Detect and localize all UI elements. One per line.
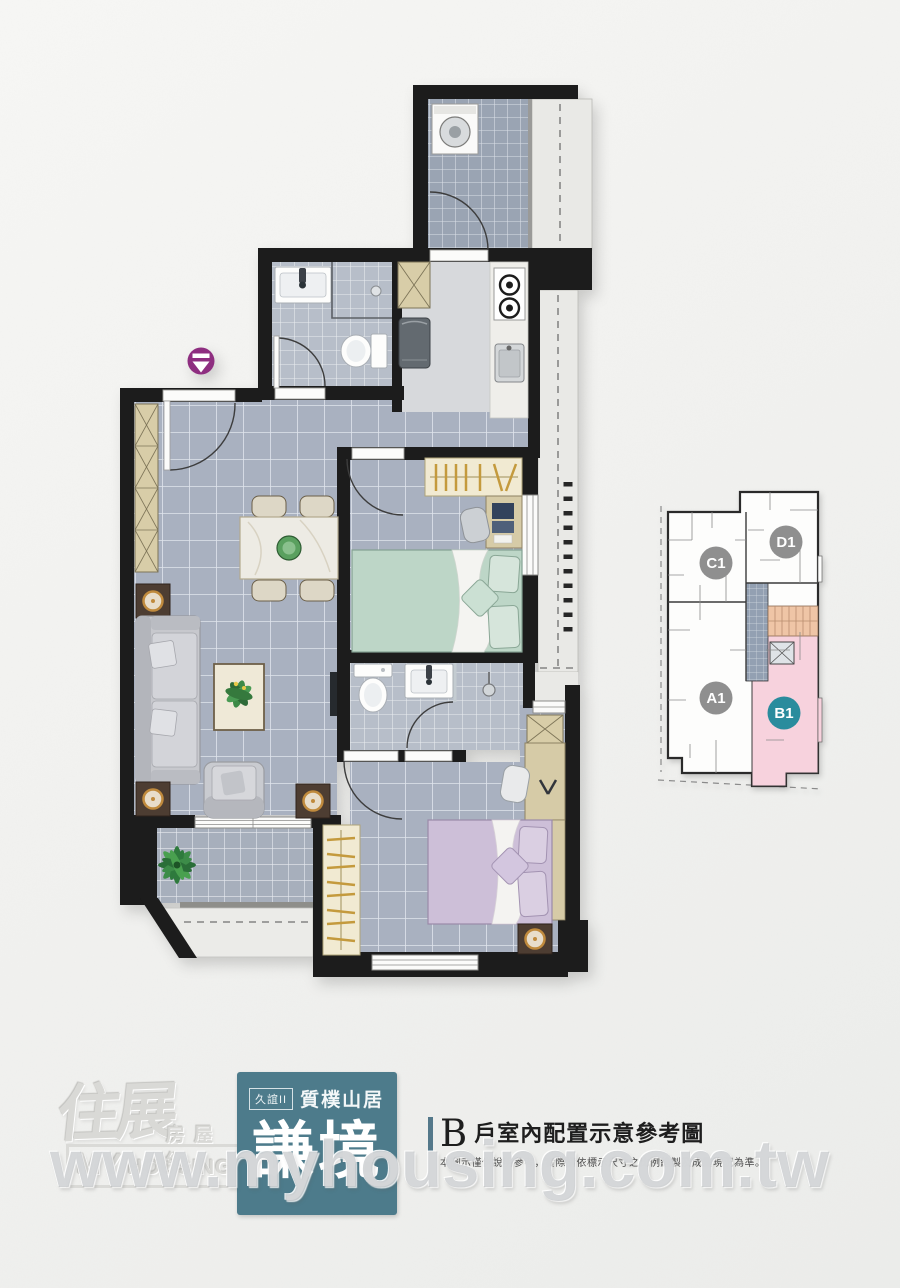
logo-housing-text: HOUSING xyxy=(127,1156,232,1179)
page-title: 戶室內配置示意參考圖 xyxy=(474,1116,704,1151)
disclaimer-text: 本圖示僅供說明參考，實際請依標示尺寸之比例繪製及成屋現況為準。 xyxy=(440,1154,758,1169)
sofa xyxy=(136,616,200,784)
dining-chair xyxy=(252,496,286,517)
keyplan-balcony xyxy=(818,556,822,582)
unit-letter: B xyxy=(440,1116,467,1151)
project-brand-box: 久誼II 質樸山居 謙境 xyxy=(237,1072,397,1215)
tv-icon xyxy=(330,672,337,716)
master-door-gap xyxy=(344,751,398,761)
dining-chair xyxy=(252,580,286,601)
unit-badge-b1: B1 xyxy=(768,697,801,730)
stove-icon xyxy=(494,268,525,320)
toilet-icon xyxy=(341,334,387,368)
unit-label-c1: C1 xyxy=(706,555,725,572)
keyplan: C1 D1 A1 B1 xyxy=(658,492,822,789)
heading-accent-bar xyxy=(428,1117,433,1151)
balcony-plant-icon xyxy=(158,846,196,884)
project-series: 質樸山居 xyxy=(300,1085,384,1112)
logo-my-text: MY xyxy=(76,1148,123,1181)
plan-heading: B 戶室內配置示意參考圖 本圖示僅供說明參考，實際請依標示尺寸之比例繪製及成屋現… xyxy=(428,1116,758,1169)
shoe-cabinet xyxy=(135,404,158,572)
corridor-core xyxy=(746,583,768,681)
unit-badge-d1: D1 xyxy=(770,526,803,559)
project-tag: 久誼II xyxy=(249,1088,293,1110)
unit-badge-a1: A1 xyxy=(700,682,733,715)
myhousing-logo: 住展 房屋網 MY HOUSING xyxy=(58,1082,238,1212)
master-bottom-window xyxy=(372,955,478,970)
wardrobe-cabinet xyxy=(527,715,563,743)
plan-heading-row: B 戶室內配置示意參考圖 xyxy=(428,1116,758,1151)
pantry-cabinet xyxy=(398,262,430,308)
unit-label-a1: A1 xyxy=(706,690,725,707)
armchair xyxy=(204,762,264,818)
nightstand-lamp-icon xyxy=(518,924,552,954)
refrigerator-icon xyxy=(399,318,430,368)
utility-door-leaf xyxy=(430,250,488,261)
bed-single xyxy=(352,550,522,652)
side-counter xyxy=(552,820,565,920)
shower-drain-icon xyxy=(371,286,381,296)
side-table-lamp-icon xyxy=(296,784,330,818)
project-brand-row: 久誼II 質樸山居 xyxy=(249,1085,387,1112)
side-table-lamp-icon xyxy=(136,782,170,816)
master-side-window xyxy=(533,701,565,713)
unit-label-b1: B1 xyxy=(774,705,793,722)
side-table-lamp-icon xyxy=(136,584,170,618)
desk xyxy=(525,743,565,820)
logo-zh-text: 住展 xyxy=(54,1080,177,1146)
entry-direction-icon xyxy=(188,348,215,375)
page: C1 D1 A1 B1 住展 房屋網 MY HOUSING 久誼II xyxy=(0,0,900,1288)
dining-chair xyxy=(300,496,334,517)
kitchen-sink-icon xyxy=(495,344,524,382)
bedroom1-door-gap xyxy=(352,448,404,459)
ledge-top xyxy=(532,99,592,250)
bathroom1-door-gap xyxy=(275,388,325,399)
balcony-edge xyxy=(180,902,313,908)
bathroom2-door-gap xyxy=(405,751,452,761)
unit-label-d1: D1 xyxy=(776,534,795,551)
washing-machine-icon xyxy=(432,104,478,154)
desk xyxy=(486,496,522,548)
entry-door-gap xyxy=(163,390,235,401)
closet xyxy=(425,458,522,496)
stairs xyxy=(768,606,818,636)
project-name: 謙境 xyxy=(249,1118,387,1183)
bed-double xyxy=(428,820,552,924)
closet xyxy=(323,825,360,955)
unit-badge-c1: C1 xyxy=(700,547,733,580)
sink-icon xyxy=(275,267,331,303)
dining-chair xyxy=(300,580,334,601)
bedroom1-window xyxy=(522,495,538,575)
logo-en-box: MY HOUSING xyxy=(66,1144,242,1188)
rug-with-plant xyxy=(214,664,264,730)
living-balcony-window xyxy=(195,817,311,828)
elevator-icon xyxy=(770,642,794,664)
keyplan-balcony xyxy=(818,698,822,742)
sink-icon xyxy=(405,664,453,698)
